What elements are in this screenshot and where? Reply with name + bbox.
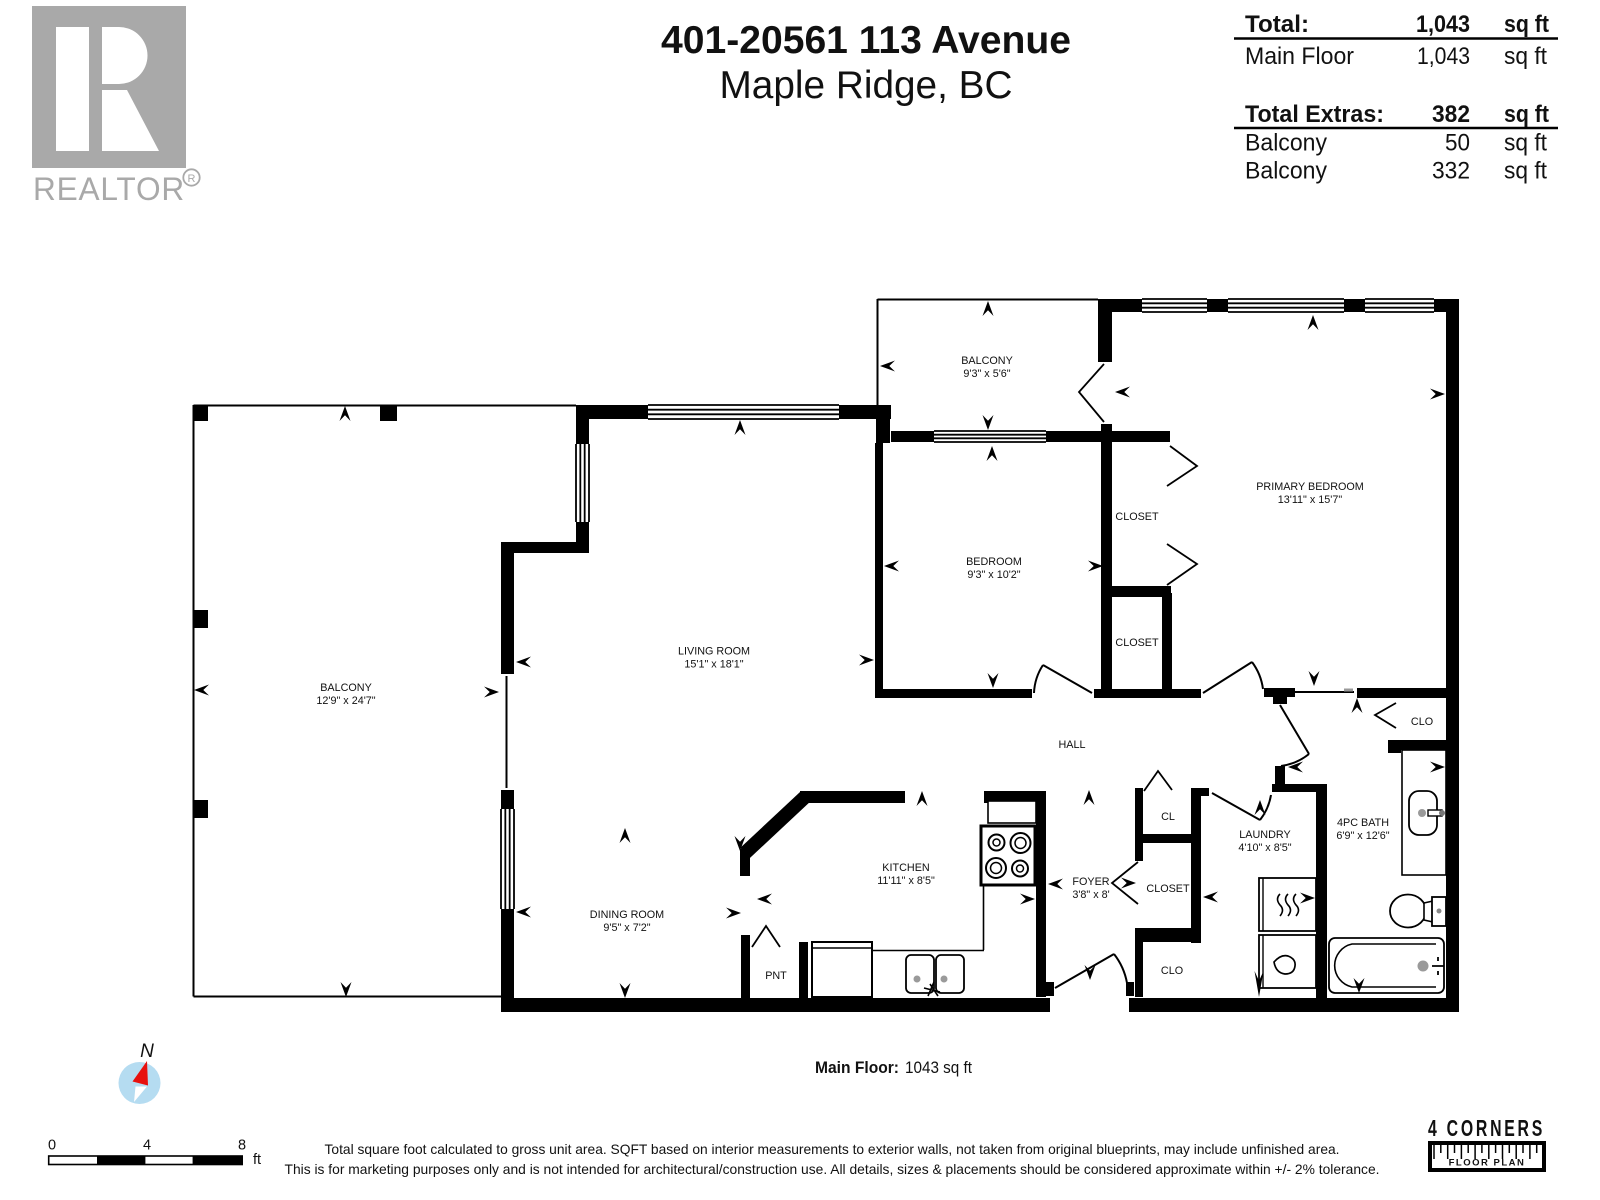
svg-text:PRIMARY BEDROOM: PRIMARY BEDROOM — [1256, 481, 1364, 493]
svg-text:Balcony: Balcony — [1245, 158, 1327, 185]
svg-text:DINING ROOM: DINING ROOM — [590, 909, 664, 921]
svg-text:382: 382 — [1432, 101, 1470, 128]
svg-text:BEDROOM: BEDROOM — [966, 556, 1022, 568]
svg-text:1,043: 1,043 — [1416, 11, 1470, 38]
svg-text:1043 sq ft: 1043 sq ft — [905, 1058, 972, 1077]
svg-text:BALCONY: BALCONY — [961, 355, 1013, 367]
svg-text:4: 4 — [143, 1138, 151, 1154]
svg-text:sq ft: sq ft — [1504, 158, 1547, 185]
svg-text:9'3" x 5'6": 9'3" x 5'6" — [963, 368, 1010, 380]
svg-text:0: 0 — [48, 1138, 56, 1154]
svg-text:332: 332 — [1432, 158, 1470, 185]
svg-text:BALCONY: BALCONY — [320, 682, 372, 694]
svg-text:FLOOR PLAN: FLOOR PLAN — [1449, 1158, 1526, 1169]
svg-text:6'9" x 12'6": 6'9" x 12'6" — [1336, 830, 1389, 842]
svg-text:Maple Ridge, BC: Maple Ridge, BC — [720, 64, 1013, 107]
svg-text:13'11" x 15'7": 13'11" x 15'7" — [1278, 494, 1343, 506]
svg-text:11'11" x 8'5": 11'11" x 8'5" — [877, 875, 935, 887]
svg-text:CLO: CLO — [1161, 965, 1183, 977]
svg-text:Total square foot calculated t: Total square foot calculated to gross un… — [325, 1142, 1340, 1157]
svg-text:CLOSET: CLOSET — [1146, 883, 1190, 895]
svg-text:401-20561 113 Avenue: 401-20561 113 Avenue — [661, 19, 1071, 62]
svg-text:CL: CL — [1161, 811, 1175, 823]
svg-text:9'3" x 10'2": 9'3" x 10'2" — [967, 569, 1020, 581]
svg-text:HALL: HALL — [1058, 739, 1085, 751]
svg-text:ft: ft — [253, 1152, 261, 1168]
svg-text:CLOSET: CLOSET — [1115, 637, 1159, 649]
svg-text:KITCHEN: KITCHEN — [882, 862, 929, 874]
svg-text:15'1" x 18'1": 15'1" x 18'1" — [684, 659, 743, 671]
svg-text:Total Extras:: Total Extras: — [1245, 101, 1384, 128]
svg-text:sq ft: sq ft — [1504, 43, 1547, 70]
svg-text:Main Floor:: Main Floor: — [815, 1058, 899, 1077]
svg-text:CLOSET: CLOSET — [1115, 511, 1159, 523]
svg-text:CLO: CLO — [1411, 716, 1433, 728]
svg-text:N: N — [140, 1041, 154, 1062]
svg-text:4 CORNERS: 4 CORNERS — [1428, 1115, 1545, 1141]
svg-text:Main Floor: Main Floor — [1245, 43, 1354, 70]
svg-text:9'5" x 7'2": 9'5" x 7'2" — [603, 922, 650, 934]
svg-text:LIVING ROOM: LIVING ROOM — [678, 646, 750, 658]
svg-text:R: R — [188, 173, 196, 185]
svg-text:This is for marketing purposes: This is for marketing purposes only and … — [285, 1162, 1380, 1177]
svg-text:Balcony: Balcony — [1245, 130, 1327, 157]
svg-text:50: 50 — [1445, 130, 1470, 157]
svg-text:sq ft: sq ft — [1504, 11, 1549, 38]
svg-text:PNT: PNT — [765, 970, 787, 982]
svg-text:LAUNDRY: LAUNDRY — [1239, 829, 1290, 841]
svg-text:Total:: Total: — [1245, 11, 1309, 38]
svg-text:3'8" x 8': 3'8" x 8' — [1072, 889, 1109, 901]
svg-text:FOYER: FOYER — [1072, 876, 1109, 888]
svg-text:4'10" x 8'5": 4'10" x 8'5" — [1238, 842, 1291, 854]
svg-text:REALTOR: REALTOR — [33, 171, 185, 207]
svg-text:sq ft: sq ft — [1504, 101, 1549, 128]
svg-text:4PC BATH: 4PC BATH — [1337, 817, 1389, 829]
svg-text:8: 8 — [238, 1138, 246, 1154]
svg-text:sq ft: sq ft — [1504, 130, 1547, 157]
svg-text:1,043: 1,043 — [1417, 43, 1470, 70]
svg-text:12'9" x 24'7": 12'9" x 24'7" — [316, 695, 375, 707]
